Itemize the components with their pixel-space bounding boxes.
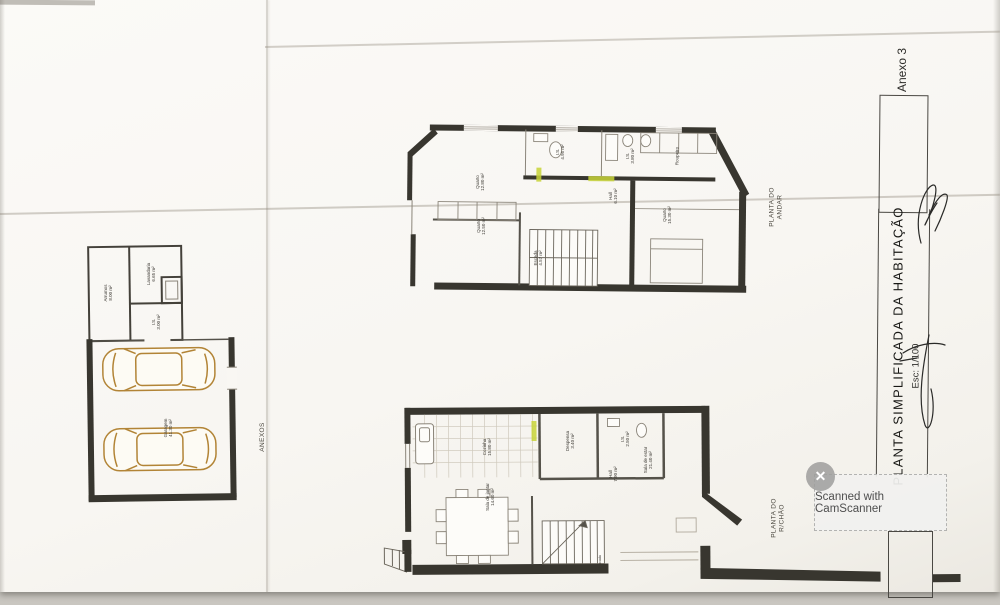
annex-tab-label: Anexo 3: [895, 48, 909, 92]
upper-floor-drawing: [404, 116, 751, 305]
room-label: Quarto 12.50 m²: [476, 217, 486, 235]
garage-door-gap: [144, 337, 170, 343]
watermark-close-icon[interactable]: ✕: [806, 462, 835, 491]
room-label: Sala de estar 21.40 m²: [643, 447, 653, 474]
scan-edge-shadow: [993, 0, 1000, 592]
signature: [885, 175, 955, 445]
title-box-bottom: [888, 531, 933, 598]
room-label: Arrumos 8.00 m²: [103, 284, 113, 301]
room-label: Garagem 41.30 m²: [163, 419, 173, 438]
room-label: I.S. 3.80 m²: [625, 148, 635, 163]
entry-steps: [384, 548, 411, 572]
watermark-text: Scanned with CamScanner: [815, 491, 946, 515]
highlight-marks: [536, 168, 614, 183]
staircase: [542, 521, 604, 564]
chimney-detail: [166, 281, 178, 299]
scan-edge-shadow: [0, 0, 95, 5]
room-label: Despensa 3.40 m²: [565, 431, 575, 451]
dining-table: [436, 489, 519, 564]
highlight-mark: [531, 421, 536, 441]
camscanner-watermark[interactable]: Scanned with CamScanner: [814, 474, 947, 531]
kitchen-sink: [415, 424, 433, 464]
ground-plan-caption: PLANTA DO R/CHÃO: [771, 498, 788, 538]
room-label: Cozinha 15.80 m²: [482, 438, 492, 456]
side-door-gap: [227, 367, 237, 389]
room-label: I.S. 2.50 m²: [620, 431, 630, 446]
room-label: Hall 7.90 m²: [608, 466, 618, 481]
room-label: Escada 4.57 m²: [533, 250, 543, 265]
sofa: [620, 518, 698, 561]
room-label: I.S. 3.00 m²: [151, 314, 161, 329]
room-label: Lavandaria 6.65 m²: [146, 263, 156, 285]
annex-plan-caption: ANEXOS: [259, 422, 267, 452]
room-label: Quarto 15.30 m²: [662, 206, 672, 224]
room-label: Quarto 12.80 m²: [475, 173, 485, 191]
room-label: I.S. 4.95 m²: [555, 144, 565, 159]
car-icon: [104, 427, 217, 471]
upper-plan-caption: PLANTA DO ANDAR: [769, 187, 786, 227]
upper-floor-plan: [404, 116, 751, 305]
window: [406, 444, 410, 468]
annex-floorplan-drawing: [73, 239, 277, 522]
car-icon: [103, 347, 216, 391]
room-label: Roupeiro: [674, 147, 679, 165]
annex-floorplan: [73, 239, 277, 522]
scan-edge-shadow: [0, 0, 5, 592]
room-label: Sala de jantar 14.60 m²: [485, 483, 495, 511]
room-label: Hall 6.10 m²: [608, 188, 618, 203]
bed: [650, 239, 702, 284]
room-label: Escada: [598, 555, 602, 567]
